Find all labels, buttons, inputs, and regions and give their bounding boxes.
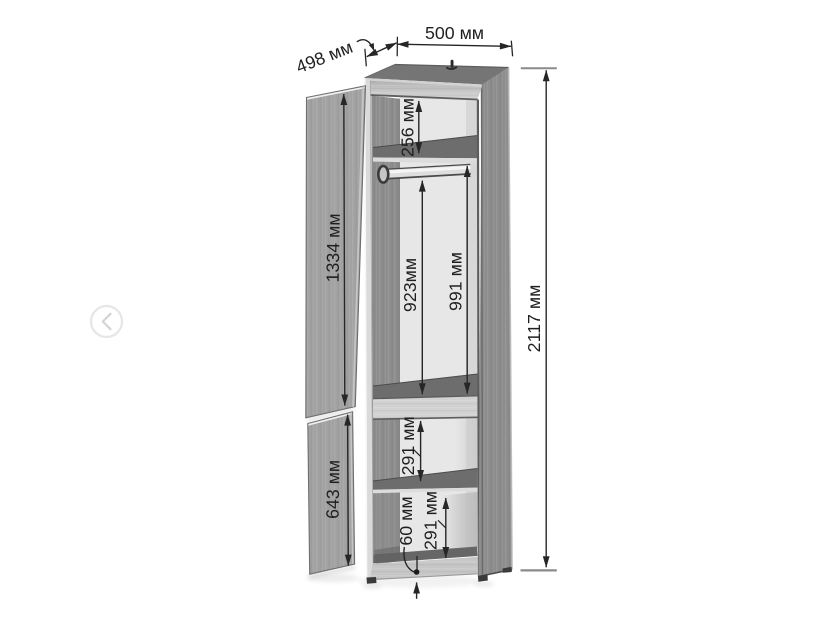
svg-text:500 мм: 500 мм (425, 23, 484, 43)
svg-text:1334 мм: 1334 мм (323, 213, 344, 282)
svg-text:2117 мм: 2117 мм (524, 285, 544, 353)
svg-text:643 мм: 643 мм (322, 460, 343, 519)
svg-text:256 мм: 256 мм (397, 98, 417, 157)
svg-text:923мм: 923мм (400, 258, 420, 312)
svg-text:60 мм: 60 мм (396, 496, 416, 545)
svg-text:291 мм: 291 мм (421, 491, 441, 550)
svg-text:291 мм: 291 мм (398, 416, 418, 475)
svg-text:991 мм: 991 мм (446, 252, 466, 311)
